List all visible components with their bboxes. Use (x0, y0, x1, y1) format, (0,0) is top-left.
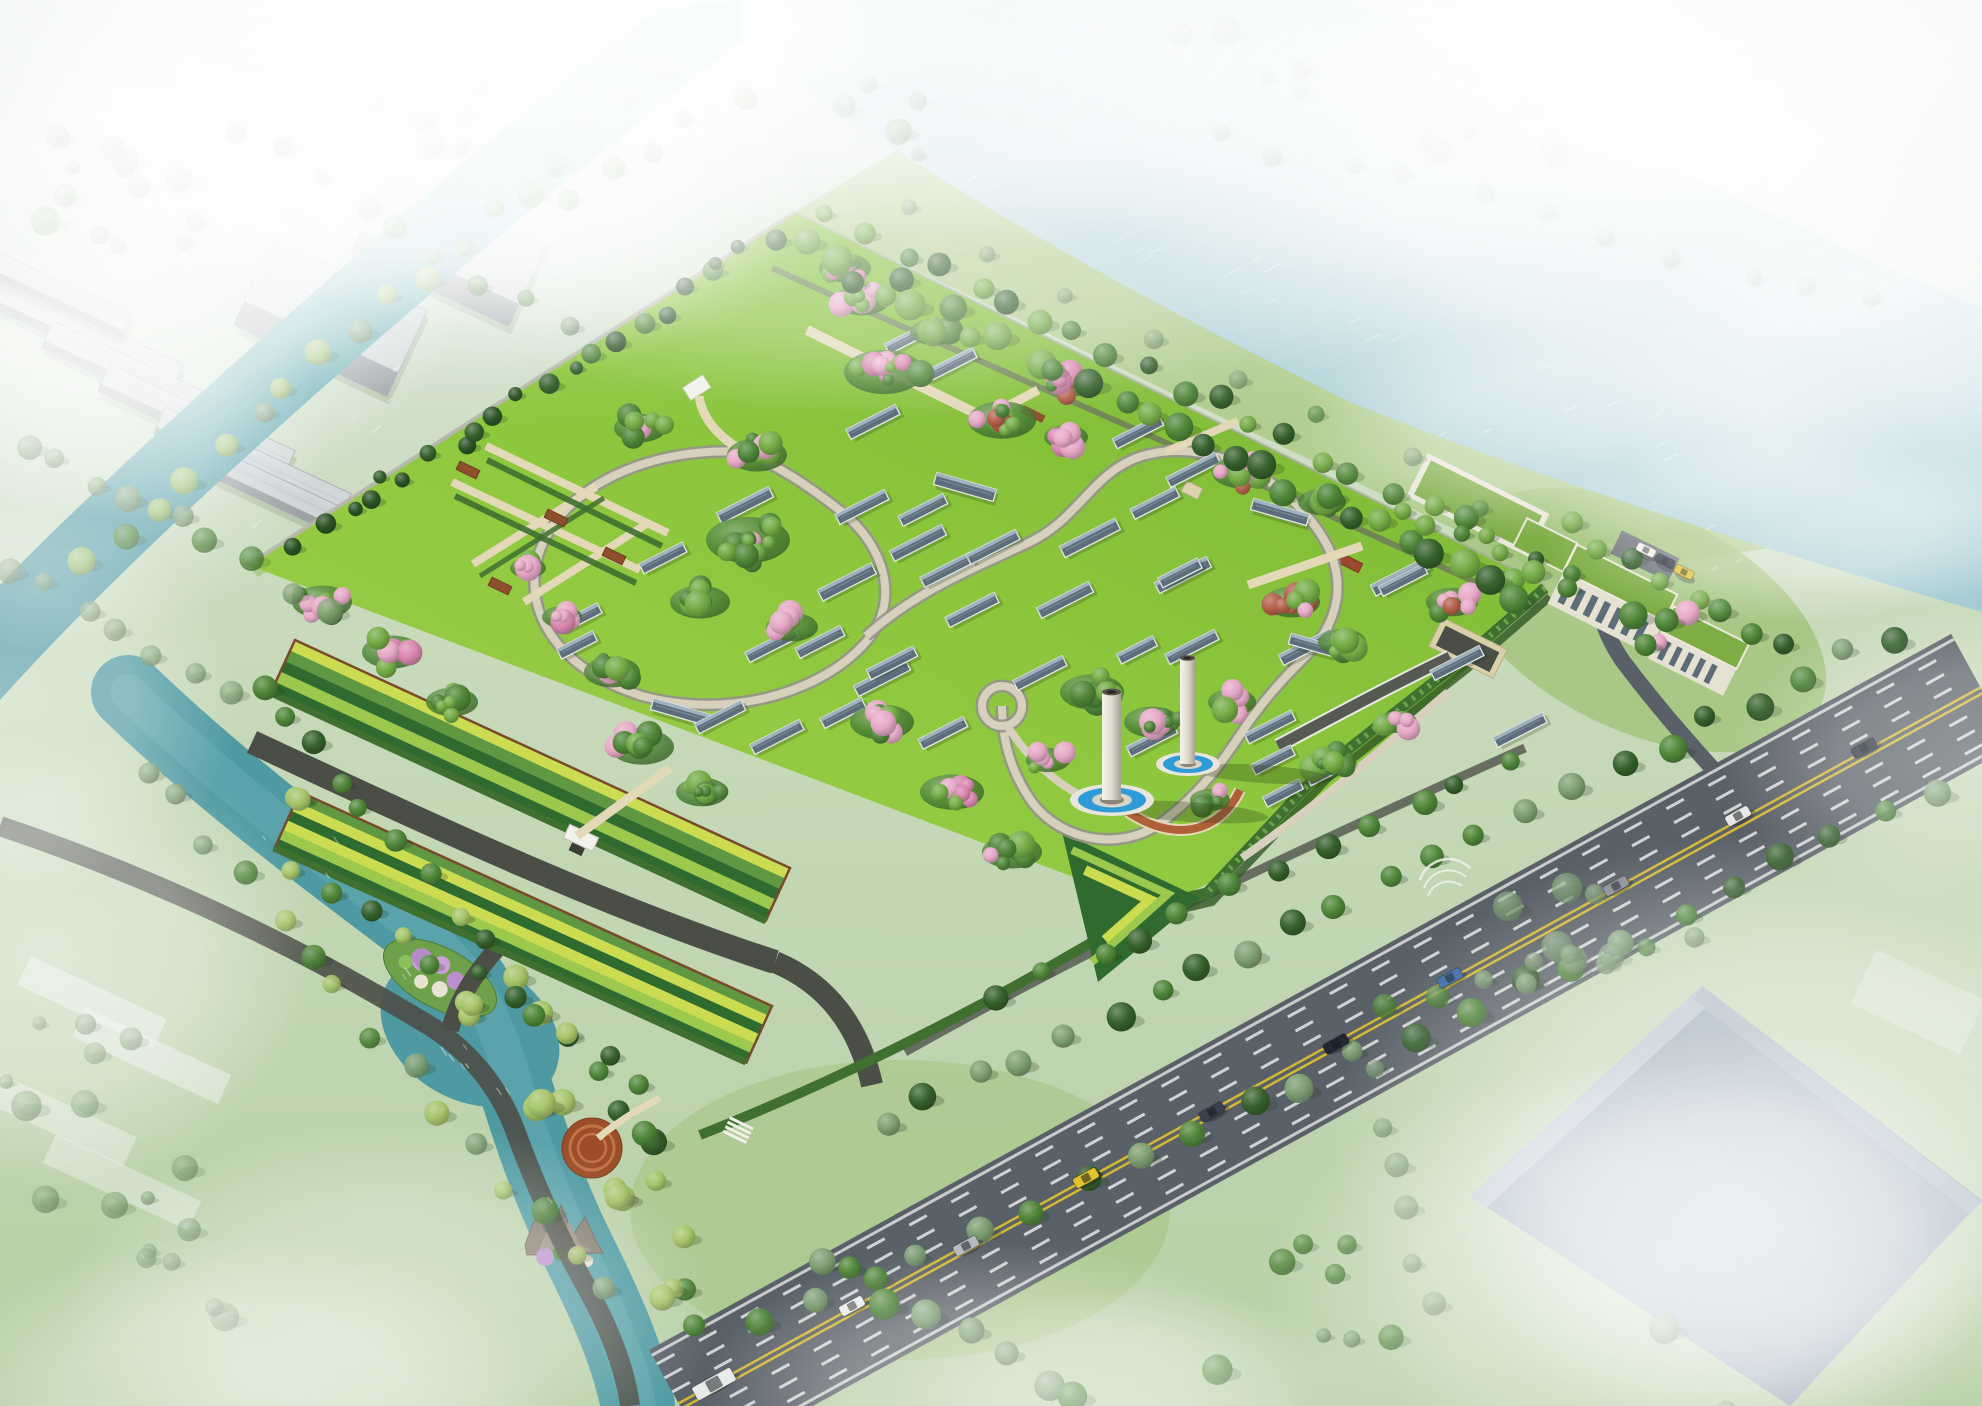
aerial-rendering: Aerial architectural rendering: green-ro… (0, 0, 1982, 1406)
stack-tower-1 (1102, 689, 1121, 800)
scene-canvas: Aerial architectural rendering: green-ro… (0, 0, 1982, 1406)
stack-tower-2 (1180, 655, 1195, 764)
